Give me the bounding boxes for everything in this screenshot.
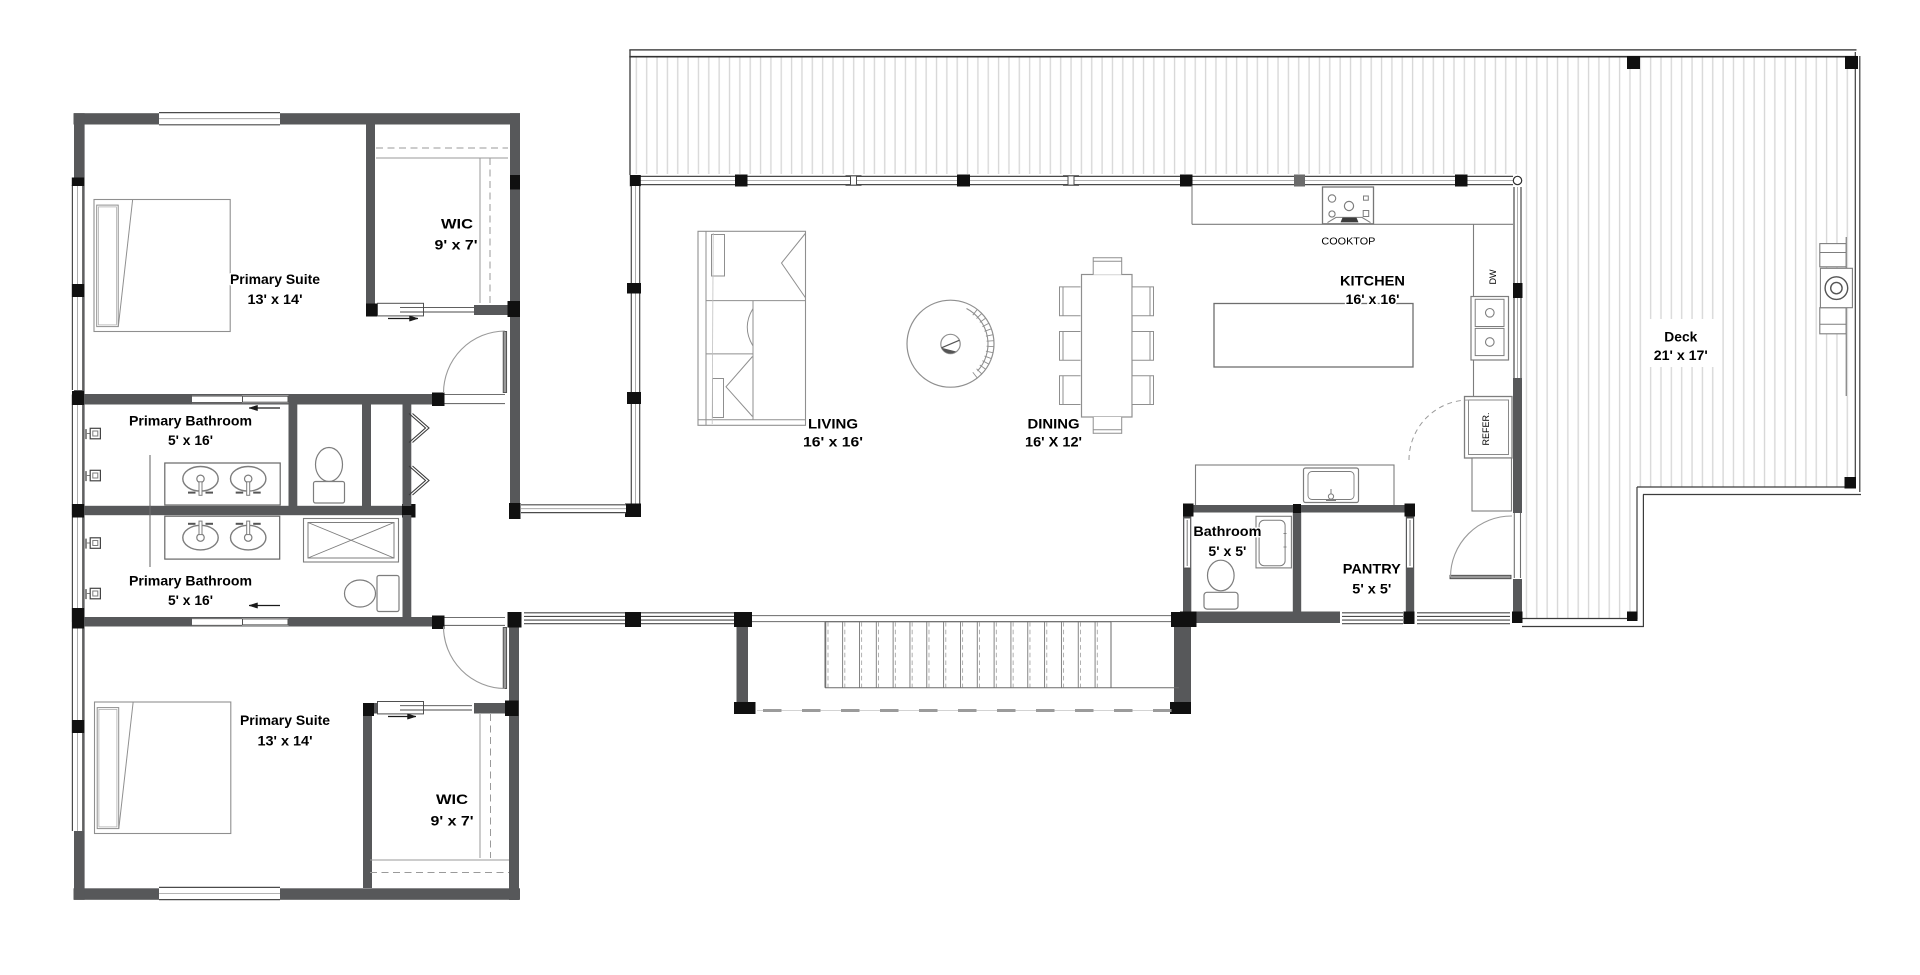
svg-text:21' x 17': 21' x 17' (1654, 347, 1708, 363)
svg-text:16' x 16': 16' x 16' (803, 434, 863, 450)
svg-text:Primary Suite: Primary Suite (240, 712, 330, 728)
svg-text:5' x 5': 5' x 5' (1208, 543, 1246, 559)
svg-text:COOKTOP: COOKTOP (1321, 236, 1375, 248)
svg-text:16' x 16': 16' x 16' (1346, 291, 1400, 307)
svg-text:5' x 5': 5' x 5' (1352, 581, 1391, 597)
svg-text:LIVING: LIVING (808, 416, 858, 432)
svg-text:DINING: DINING (1028, 416, 1080, 432)
svg-text:Primary Suite: Primary Suite (230, 271, 320, 287)
svg-text:16' X 12': 16' X 12' (1025, 434, 1082, 450)
svg-text:13' x 14': 13' x 14' (248, 291, 303, 307)
svg-text:KITCHEN: KITCHEN (1340, 273, 1405, 289)
svg-text:Deck: Deck (1664, 329, 1697, 345)
svg-text:Primary Bathroom: Primary Bathroom (129, 413, 252, 429)
svg-text:5' x 16': 5' x 16' (168, 592, 213, 608)
svg-text:9' x 7': 9' x 7' (431, 813, 474, 829)
svg-text:Primary Bathroom: Primary Bathroom (129, 573, 252, 589)
svg-text:WIC: WIC (441, 216, 473, 232)
svg-text:9' x 7': 9' x 7' (435, 237, 478, 253)
svg-text:DW: DW (1488, 269, 1498, 284)
svg-text:Bathroom: Bathroom (1193, 523, 1261, 539)
svg-text:PANTRY: PANTRY (1343, 561, 1402, 577)
svg-text:13' x 14': 13' x 14' (258, 733, 313, 749)
svg-text:WIC: WIC (436, 791, 468, 807)
svg-text:REFER.: REFER. (1481, 412, 1491, 445)
svg-text:5' x 16': 5' x 16' (168, 432, 213, 448)
